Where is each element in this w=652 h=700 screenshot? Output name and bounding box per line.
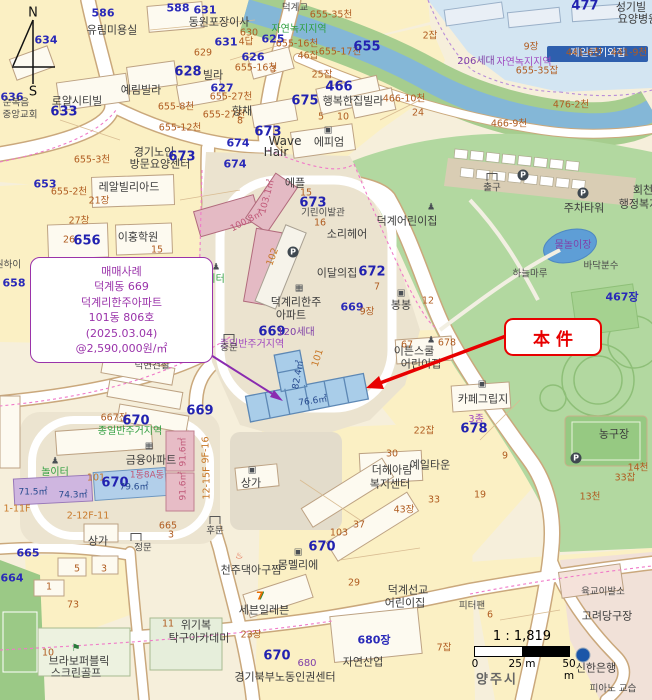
area-71-5: 71.5㎡ xyxy=(18,489,47,498)
dong-102: 102 xyxy=(265,247,280,267)
poi-hyangchae: 향채 xyxy=(232,106,252,117)
annotation-line: (2025.03.04) xyxy=(31,326,212,342)
golf-flag-icon: ⚑ xyxy=(72,644,81,654)
shop-icon: ▣ xyxy=(324,127,333,136)
map-canvas[interactable]: 586유림미용실634588631동원포장이사629628빌라예림빌라로얄시티빌… xyxy=(0,0,652,700)
scale-zero: 0 xyxy=(472,658,479,670)
jibun-19: 19 xyxy=(474,490,486,500)
poi-hanju-apt-2: 아파트 xyxy=(276,310,306,321)
poi-yurim-beauty: 유림미용실 xyxy=(87,25,138,36)
shop-icon-cafe: ▣ xyxy=(478,381,487,390)
jibun-629: 629 xyxy=(194,48,212,58)
poi-shinhan-bank: 신한은행 xyxy=(576,663,616,674)
jibun-26: 26 xyxy=(63,235,75,245)
shop-icon-mong: ▣ xyxy=(294,549,303,558)
jibun-667: 667전 xyxy=(101,413,128,423)
jibun-9: 9 xyxy=(502,451,508,461)
scale-bar: 1 : 1,819 0 25 m 50 m xyxy=(466,629,578,670)
poi-hanju-apt-1: 덕계리한주 xyxy=(271,297,322,308)
label-206-sedae: 206세대 xyxy=(457,57,495,67)
subject-label: 本件 xyxy=(527,325,579,350)
sale-case-arrowhead xyxy=(270,390,283,401)
poi-admin-center: 행정복지 xyxy=(619,199,652,210)
apartment-icon-hanju: ▦ xyxy=(295,285,304,294)
jibun-5a: 5 xyxy=(318,112,324,122)
area-100-8: 100.8㎡ xyxy=(230,210,265,234)
jibun-674b: 674 xyxy=(224,159,247,170)
poi-happy-house-villa: 행복한집빌라 xyxy=(323,96,384,107)
jibun-22jap: 22잡 xyxy=(414,426,435,436)
jibun-441-6: 441-6천 xyxy=(566,48,602,58)
poi-bongbong: 봉봉 xyxy=(391,300,411,311)
poi-ihong-academy: 이홍학원 xyxy=(118,232,158,243)
jibun-24: 24 xyxy=(412,108,424,118)
annotation-line: 덕계리한주아파트 xyxy=(31,295,212,311)
poi-girin-barber: 기린이발관 xyxy=(301,208,345,218)
jibun-672: 672 xyxy=(358,266,385,279)
poi-dongwon-moving: 동원포장이사 xyxy=(189,17,250,28)
jibun-675: 675 xyxy=(291,95,318,108)
jibun-4dap: 4답 xyxy=(239,37,254,47)
jibun-673a: 673 xyxy=(168,151,195,164)
poi-eton-school: 이튼스쿨 xyxy=(394,346,434,357)
jibun-678b: 678 xyxy=(460,423,487,436)
scale-end: 50 m xyxy=(562,658,575,682)
jibun-9jang-b: 9장 xyxy=(360,307,375,317)
area-91-6b: 91.6㎡ xyxy=(180,471,189,500)
jibun-7: 7 xyxy=(374,282,380,292)
parking-icon-2: P xyxy=(578,188,589,199)
poi-dehearim: 더헤아림 xyxy=(372,465,412,476)
jibun-37: 37 xyxy=(353,520,365,530)
poi-water-play: 물놀이장 xyxy=(555,241,592,251)
jibun-23jang: 23장 xyxy=(241,630,262,640)
jibun-669a: 669 xyxy=(258,326,285,339)
jibun-441-9: 441-9천 xyxy=(611,48,647,58)
jibun-655-35: 655-35천 xyxy=(310,10,352,20)
apartment-icon-geumyung: ▦ xyxy=(145,443,154,452)
poi-visit-care-center: 방문요양센터 xyxy=(130,159,191,170)
jibun-655-16b: 655-16천 xyxy=(235,63,277,73)
poi-cafe-gripji: 카페그립지 xyxy=(458,394,509,405)
poi-deokgye-bridge: 덕계교 xyxy=(282,3,308,13)
jibun-655-17: 655-17천 xyxy=(319,47,361,57)
jibun-9jang-a: 9장 xyxy=(524,42,539,52)
poi-goryeo-billiard: 고려당구장 xyxy=(582,611,633,622)
poi-jungang-church: 중앙교회 xyxy=(3,110,38,120)
poi-playground-b: 놀이터 xyxy=(41,468,69,478)
scale-ratio: 1 : 1,819 xyxy=(466,629,578,644)
shop-icon-sangga: ▣ xyxy=(248,467,257,476)
jibun-30: 30 xyxy=(386,449,398,459)
poi-deokgye-daycare: 덕계어린이집 xyxy=(377,216,438,227)
poi-idalui-jip: 이달의집 xyxy=(317,268,357,279)
person-icon-playground-a: ♟ xyxy=(212,264,220,273)
jibun-1: 1 xyxy=(46,582,52,592)
jibun-5b: 5 xyxy=(74,564,80,574)
poi-peterpan: 피터팬 xyxy=(459,601,485,611)
jibun-14cheon: 14천 xyxy=(628,463,649,473)
jibun-10b: 10 xyxy=(42,648,54,658)
area-76-6: 76.6㎡ xyxy=(298,396,328,409)
jibun-670c: 670 xyxy=(308,541,335,554)
jibun-655-16a: 655-16천 xyxy=(276,39,318,49)
poi-screen-golf: 스크린골프 xyxy=(51,668,102,679)
poi-sangga-b: 상가 xyxy=(241,478,261,489)
zone-3jong: 3종 xyxy=(468,415,484,425)
jibun-626: 626 xyxy=(242,52,265,63)
poi-welfare-center: 복지센터 xyxy=(370,479,410,490)
jibun-466-9: 466-9천 xyxy=(491,119,527,129)
poi-bravo-public: 브라보퍼블릭 xyxy=(49,656,110,667)
shop-icon-bongbong: ▣ xyxy=(397,290,406,299)
area-74-3: 74.3㎡ xyxy=(58,492,87,501)
poi-villa: 빌라 xyxy=(203,70,223,81)
compass-north-label: N xyxy=(28,6,38,21)
poi-wigibok: 위기복 xyxy=(181,620,211,631)
label-1-11f: 1-11F xyxy=(3,504,30,514)
label-2-12f-11: 2-12F-11 xyxy=(67,511,110,521)
annotation-line: @2,590,000원/㎡ xyxy=(31,341,212,357)
poi-eton-daycare: 어린이집 xyxy=(401,359,441,370)
jibun-628: 628 xyxy=(174,66,201,79)
jibun-670a: 670 xyxy=(122,415,149,428)
person-icon-daycare2: ♟ xyxy=(427,337,435,346)
poi-real-billiard: 레알빌리아드 xyxy=(99,182,160,193)
jibun-673b: 673 xyxy=(254,126,281,139)
poi-wave: Wave xyxy=(269,135,302,147)
jibun-669c: 669 xyxy=(186,405,213,418)
jibun-476-2: 476-2천 xyxy=(553,100,589,110)
jibun-33jap: 33잡 xyxy=(615,473,636,483)
jibun-15b: 15 xyxy=(300,188,312,198)
poi-royal-city-vill: 로얄시티빌 xyxy=(52,96,103,107)
poi-mongmellier: 몽멜리에 xyxy=(278,560,318,571)
poi-rear-gate: 후문 xyxy=(206,526,223,536)
jibun-25jap: 25잡 xyxy=(312,70,333,80)
person-icon-playground-b: ♟ xyxy=(51,458,59,467)
jibun-8: 8 xyxy=(237,116,243,126)
jibun-13cheon: 13천 xyxy=(580,492,601,502)
compass-south-label: S xyxy=(29,85,37,100)
poi-jeilkeun-giwajip: 제일큰기와집 xyxy=(570,49,625,59)
jibun-46jap: 46잡 xyxy=(298,51,319,61)
gate-icon-rear xyxy=(210,516,221,524)
dong-101b: 101 xyxy=(87,473,105,483)
area-82-4: 82.4㎡ xyxy=(292,360,306,390)
jibun-43jang: 43장 xyxy=(394,505,415,515)
poi-epieom: 에피엄 xyxy=(314,137,344,148)
area-91-6a: 91.6㎡ xyxy=(180,437,189,466)
jibun-625: 625 xyxy=(262,34,285,45)
annotation-line: 매매사례 xyxy=(31,264,212,280)
poi-gyeonggi-senior: 경기노인 xyxy=(134,147,174,158)
jibun-467: 467장 xyxy=(605,292,638,303)
poi-hair: Hair xyxy=(264,146,289,158)
poi-floor-fountain: 바닥분수 xyxy=(584,261,619,271)
jibun-631b: 631 xyxy=(215,37,238,48)
jibun-655-27a: 655-27천 xyxy=(210,92,252,102)
jibun-10a: 10 xyxy=(337,112,349,122)
zone-green-belt-a: 자연녹지지역 xyxy=(271,25,326,35)
poi-seven-eleven: 세븐일레븐 xyxy=(239,605,290,616)
jibun-11: 11 xyxy=(162,619,174,629)
jibun-477: 477 xyxy=(571,0,598,13)
poi-agujjim: 천주댁아구찜 xyxy=(221,565,282,576)
jibun-656: 656 xyxy=(73,235,100,248)
poi-sangga-a: 상가 xyxy=(88,536,108,547)
poi-geumyung-apt: 금융아파트 xyxy=(126,455,177,466)
zone-residential-a: 종일반주거지역 xyxy=(220,340,284,350)
jibun-3a: 3 xyxy=(270,65,276,75)
dong-101a: 101 xyxy=(311,348,326,368)
jibun-670b: 670 xyxy=(101,477,128,490)
bank-icon xyxy=(577,649,590,662)
jibun-466: 466 xyxy=(325,81,352,94)
subject-arrowhead xyxy=(366,376,384,389)
jibun-21: 21장 xyxy=(89,196,110,206)
scale-mid: 25 m xyxy=(509,658,536,670)
sale-case-annotation-box: 매매사례 덕계동 669 덕계리한주아파트 101동 806호 (2025.03… xyxy=(30,257,213,363)
poi-yeil-town: 예일타운 xyxy=(410,460,450,471)
jibun-670d: 670 xyxy=(263,650,290,663)
jibun-627: 627 xyxy=(211,83,234,94)
jibun-588: 588 xyxy=(167,3,190,14)
jibun-655-8: 655-8천 xyxy=(158,102,194,112)
jibun-680: 680 xyxy=(297,659,316,669)
jibun-3b: 3 xyxy=(168,530,174,540)
parking-icon-4: P xyxy=(571,453,582,464)
annotation-line: 101동 806호 xyxy=(31,310,212,326)
jibun-636: 636 xyxy=(1,92,24,103)
jibun-665b: 665 xyxy=(17,548,40,559)
annotation-line: 덕계동 669 xyxy=(31,279,212,295)
parking-icon-3: P xyxy=(288,247,299,258)
jibun-655: 655 xyxy=(353,41,380,54)
poi-main-gate: 정문 xyxy=(134,543,151,553)
poi-piano: 피아노 교습 xyxy=(590,684,637,694)
poi-jayeon-sanup: 자연산업 xyxy=(343,657,383,668)
sale-case-arrow xyxy=(206,352,279,398)
jibun-2jap: 2잡 xyxy=(423,31,438,41)
jibun-653: 653 xyxy=(34,179,57,190)
jibun-16: 16 xyxy=(314,218,326,228)
poi-apple: 에플 xyxy=(285,178,305,189)
jibun-6: 6 xyxy=(487,610,493,620)
jibun-3c: 3 xyxy=(101,564,107,574)
poi-sunbokeum: 순복음 xyxy=(3,98,29,108)
jibun-673c: 673 xyxy=(299,197,326,210)
jibun-27: 27창 xyxy=(69,216,90,226)
jibun-586: 586 xyxy=(92,8,115,19)
jibun-655-2: 655-2천 xyxy=(51,187,87,197)
gate-icon-main xyxy=(131,533,142,541)
jibun-466-10: 466-10천 xyxy=(383,94,425,104)
scale-bar-graphic xyxy=(474,646,570,657)
jibun-678a: 678 xyxy=(438,338,456,348)
poi-parking-tower: 주차타워 xyxy=(564,203,604,214)
poi-sori-hair: 소리헤어 xyxy=(327,229,367,240)
jibun-103: 103 xyxy=(330,528,348,538)
label-9f-16: 9F-16 xyxy=(201,436,211,463)
jibun-655-35jap: 655-35잡 xyxy=(516,66,558,76)
jibun-680jang: 680장 xyxy=(357,635,390,646)
area-79-6: 79.6㎡ xyxy=(119,484,148,493)
subject-arrow xyxy=(372,336,506,386)
poi-labor-center: 경기북부노동인권센터 xyxy=(234,672,335,683)
gate-icon-exit xyxy=(487,173,498,181)
label-120-sedae: 120세대 xyxy=(277,328,315,338)
jibun-67: 67 xyxy=(401,340,413,350)
area-103-1: 103.1㎡ xyxy=(259,179,277,215)
poi-middle-gate: 중문 xyxy=(220,343,237,353)
jibun-669b: 669 xyxy=(341,302,364,313)
poi-exit: 출구 xyxy=(483,183,500,193)
food-icon: ♨ xyxy=(235,553,243,562)
poi-care-hospital: 요양병원 xyxy=(618,14,652,25)
jibun-655-12: 655-12천 xyxy=(159,123,201,133)
seven-eleven-icon: 7 xyxy=(256,591,264,602)
jibun-73: 73 xyxy=(67,600,79,610)
poi-wonhai: 원하이 xyxy=(0,260,21,270)
admin-yangju: 양주시 xyxy=(476,674,518,687)
jibun-29: 29 xyxy=(348,578,360,588)
zone-residential-b: 종일반주거지역 xyxy=(98,427,162,437)
jibun-15a: 15 xyxy=(151,245,163,255)
jibun-658: 658 xyxy=(3,278,26,289)
jibun-631a: 631 xyxy=(194,5,217,16)
jibun-655-3: 655-3천 xyxy=(74,155,110,165)
label-8a-dong: 1동8A동 xyxy=(130,472,164,481)
zone-green-belt-b: 자연녹지지역 xyxy=(496,58,551,68)
poi-hoecheon: 회천 xyxy=(633,185,652,196)
subject-callout-box: 本件 xyxy=(504,318,602,356)
person-icon-daycare1: ♟ xyxy=(427,204,435,213)
parking-icon-1: P xyxy=(518,170,529,181)
jibun-634: 634 xyxy=(35,35,58,46)
poi-yukgyo-barber: 육교이발소 xyxy=(581,587,625,597)
jibun-12: 12 xyxy=(422,296,434,306)
poi-mission-daycare: 어린이집 xyxy=(385,598,425,609)
poi-haneulmaru: 하늘마루 xyxy=(513,269,548,279)
jibun-664: 664 xyxy=(1,573,24,584)
poi-basketball: 농구장 xyxy=(599,429,629,440)
label-12-15f: 12-15F xyxy=(202,466,212,499)
jibun-630: 630 xyxy=(240,28,258,38)
jibun-7jap: 7잡 xyxy=(437,643,452,653)
poi-seonggi-bldg: 성기빌 xyxy=(616,2,646,13)
poi-deokgye-mission: 덕계선교 xyxy=(388,585,428,596)
gate-icon-middle xyxy=(224,334,235,342)
jibun-665a: 665 xyxy=(159,521,177,531)
jibun-655-27b: 655-27천 xyxy=(203,110,245,120)
poi-pingpong-academy: 탁구아카데미 xyxy=(169,633,230,644)
jibun-674a: 674 xyxy=(227,138,250,149)
jibun-633: 633 xyxy=(50,106,77,119)
jibun-33: 33 xyxy=(428,495,440,505)
poi-yerim-villa: 예림빌라 xyxy=(121,85,161,96)
